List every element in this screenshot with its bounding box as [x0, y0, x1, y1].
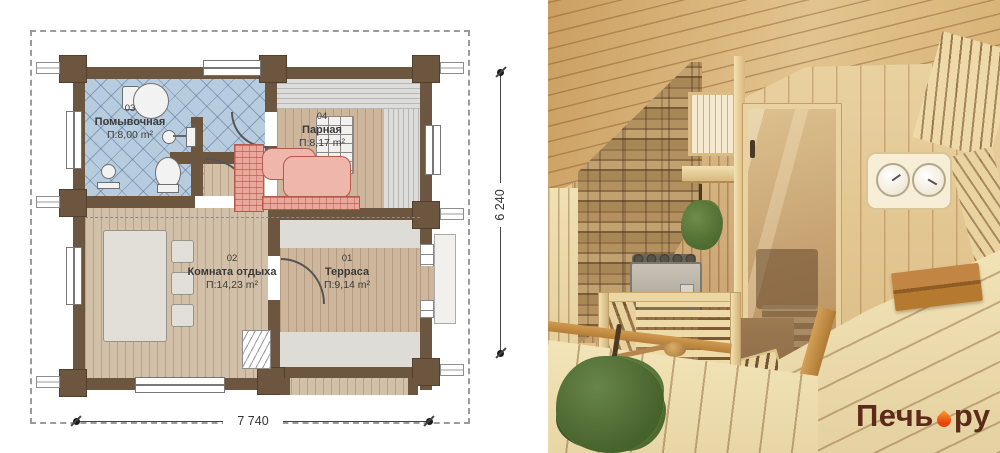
water-heater-base: [97, 182, 120, 189]
wall-segment: [268, 220, 280, 256]
wall-segment: [268, 367, 432, 378]
room-name: Парная: [247, 123, 397, 137]
interior-photo: Печь ру: [548, 0, 1000, 453]
watermark-brand: Печь: [856, 398, 934, 434]
room-label-washroom: 03 Помывочная П:8,00 m²: [55, 103, 205, 142]
hatch-area: [242, 330, 271, 369]
terrace-post: [280, 378, 290, 395]
loft-outline-dashed: [85, 217, 420, 218]
log-end: [440, 208, 464, 220]
watermark-suffix: ру: [954, 398, 991, 434]
vent-window: [688, 92, 738, 156]
room-label-terrace: 01 Терраса П:9,14 m²: [272, 253, 422, 292]
room-number: 01: [272, 253, 422, 265]
steam-bench-top: [277, 79, 420, 109]
thermo-hygrometer: [866, 152, 952, 210]
thermometer-dial: [876, 163, 910, 197]
room-area: П:8,17 m²: [247, 137, 397, 150]
stool: [171, 304, 194, 327]
room-name: Терраса: [272, 265, 422, 279]
terrace-outside-bench: [434, 234, 456, 324]
heater-guard-rail: [598, 292, 741, 302]
log-end: [36, 62, 60, 74]
toilet-tank: [157, 184, 179, 193]
birch-besom: [556, 356, 664, 453]
room-name: Помывочная: [55, 115, 205, 129]
log-crossing: [259, 55, 287, 83]
stove-masonry: [234, 144, 264, 212]
log-end: [36, 196, 60, 208]
room-number: 04: [247, 111, 397, 123]
floor-plan: 03 Помывочная П:8,00 m² 04 Парная П:8,17…: [0, 0, 548, 453]
corner-shelf: [682, 166, 736, 183]
sauna-listing-image: 03 Помывочная П:8,00 m² 04 Парная П:8,17…: [0, 0, 1000, 453]
door-reflection: [756, 249, 818, 309]
log-crossing: [412, 201, 440, 229]
log-crossing: [59, 189, 87, 217]
log-end: [440, 62, 464, 74]
log-end: [440, 364, 464, 376]
flame-icon: [934, 410, 954, 430]
window: [135, 377, 225, 393]
window: [203, 60, 261, 76]
room-number: 03: [55, 103, 205, 115]
water-heater: [101, 164, 116, 179]
room-label-steam: 04 Парная П:8,17 m²: [247, 111, 397, 150]
terrace-steps: [283, 378, 418, 395]
log-crossing: [59, 55, 87, 83]
terrace-opening: [420, 266, 434, 300]
log-crossing: [412, 55, 440, 83]
steam-step: [262, 196, 360, 210]
ladle-bowl: [664, 342, 686, 357]
steam-lounger: [283, 156, 351, 198]
dimension-width-label: 7 740: [223, 413, 283, 429]
hanging-birch-besom: [681, 200, 723, 250]
terrace-railing: [420, 244, 434, 268]
terrace-railing: [420, 300, 434, 318]
log-crossing: [59, 369, 87, 397]
window: [425, 125, 441, 175]
window: [66, 247, 82, 305]
room-area: П:9,14 m²: [272, 279, 422, 292]
terrace-post: [408, 378, 418, 395]
dimension-height-label: 6 240: [492, 183, 508, 227]
wall-segment: [73, 196, 195, 208]
log-end: [36, 376, 60, 388]
site-watermark: Печь ру: [856, 394, 991, 438]
door-handle: [750, 140, 755, 158]
room-area: П:8,00 m²: [55, 129, 205, 142]
hygrometer-dial: [912, 163, 946, 197]
